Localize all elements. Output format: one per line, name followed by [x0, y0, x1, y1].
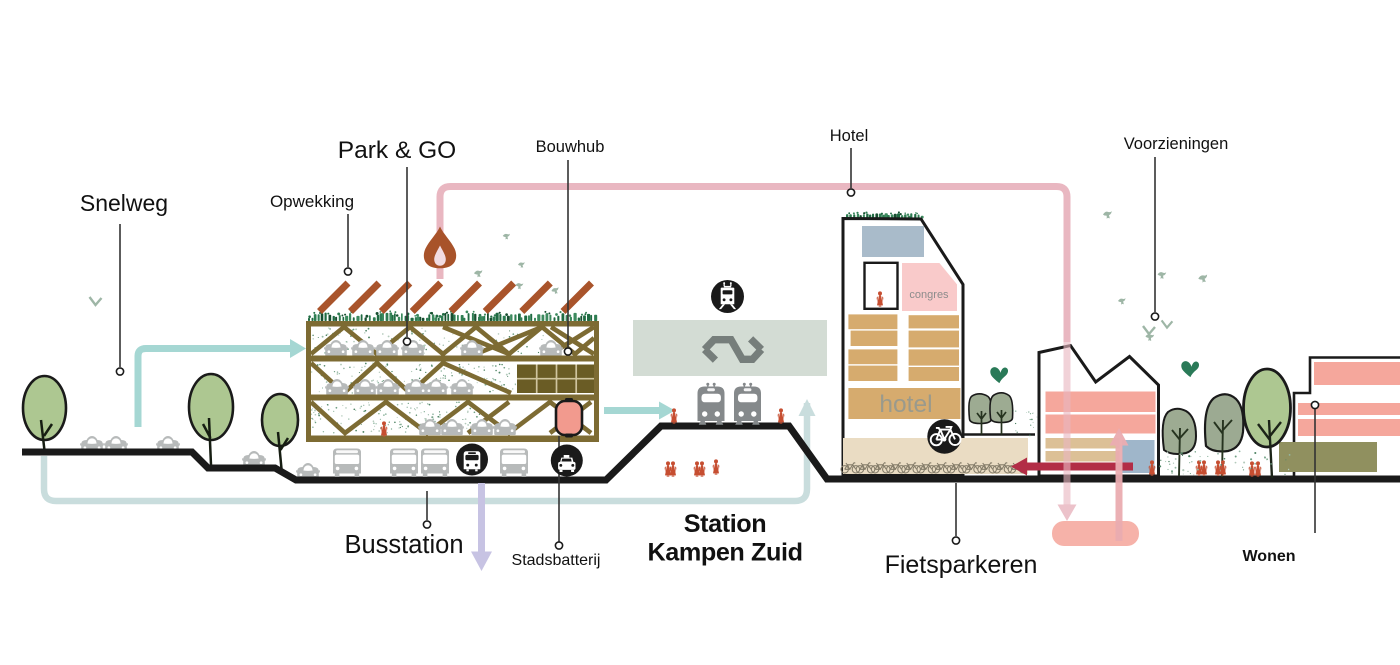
- svg-text:Station: Station: [684, 510, 767, 538]
- svg-text:Busstation: Busstation: [344, 531, 463, 559]
- svg-text:hotel: hotel: [879, 391, 932, 418]
- svg-text:Park & GO: Park & GO: [338, 137, 456, 164]
- svg-text:Fietsparkeren: Fietsparkeren: [885, 551, 1038, 579]
- svg-text:congres: congres: [909, 289, 949, 301]
- svg-text:Wonen: Wonen: [1242, 548, 1295, 565]
- svg-text:Snelweg: Snelweg: [80, 190, 168, 216]
- svg-text:Stadsbatterij: Stadsbatterij: [512, 552, 601, 569]
- svg-text:Voorzieningen: Voorzieningen: [1124, 135, 1229, 153]
- svg-text:Kampen Zuid: Kampen Zuid: [647, 539, 802, 567]
- svg-text:Bouwhub: Bouwhub: [536, 138, 605, 156]
- svg-text:Opwekking: Opwekking: [270, 192, 354, 211]
- svg-text:Hotel: Hotel: [830, 127, 869, 145]
